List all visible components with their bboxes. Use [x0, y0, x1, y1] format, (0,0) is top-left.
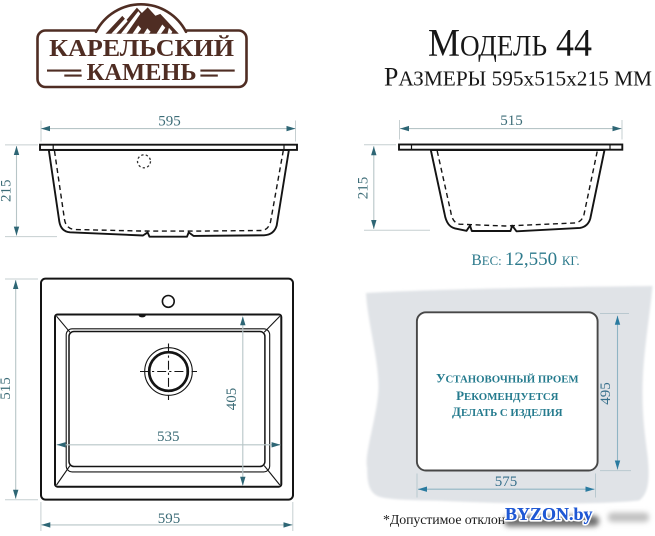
svg-text:РЕКОМЕНДУЕТСЯ: РЕКОМЕНДУЕТСЯ	[456, 388, 559, 403]
svg-text:BYZON.by: BYZON.by	[505, 504, 593, 524]
svg-text:*Допустимое отклон: *Допустимое отклон	[383, 513, 506, 528]
svg-text:ВЕС: 12,550 КГ.: ВЕС: 12,550 КГ.	[471, 249, 579, 270]
svg-text:595: 595	[158, 113, 181, 129]
svg-text:УСТАНОВОЧНЫЙ ПРОЕМ: УСТАНОВОЧНЫЙ ПРОЕМ	[436, 371, 579, 386]
svg-text:595: 595	[158, 511, 181, 527]
svg-text:РАЗМЕРЫ 595х515х215 ММ: РАЗМЕРЫ 595х515х215 ММ	[384, 63, 652, 92]
svg-text:215: 215	[356, 177, 372, 200]
svg-text:535: 535	[157, 429, 180, 445]
svg-text:МОДЕЛЬ 44: МОДЕЛЬ 44	[428, 22, 592, 65]
svg-text:515: 515	[0, 377, 14, 400]
svg-text:515: 515	[500, 113, 523, 129]
svg-text:575: 575	[495, 474, 518, 490]
svg-text:КАМЕНЬ: КАМЕНЬ	[87, 59, 197, 86]
svg-text:ДЕЛАТЬ С ИЗДЕЛИЯ: ДЕЛАТЬ С ИЗДЕЛИЯ	[452, 404, 563, 419]
svg-text:495: 495	[598, 382, 614, 405]
svg-text:215: 215	[0, 180, 14, 203]
svg-text:405: 405	[224, 388, 240, 411]
